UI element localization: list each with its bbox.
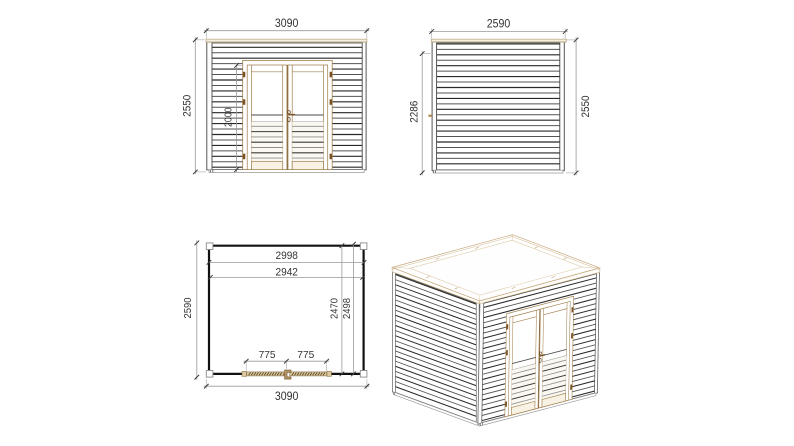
svg-text:3090: 3090 — [275, 390, 299, 403]
svg-text:2590: 2590 — [487, 16, 511, 30]
svg-text:775: 775 — [259, 350, 276, 361]
svg-text:2498: 2498 — [342, 298, 353, 319]
svg-text:2590: 2590 — [183, 297, 194, 318]
svg-text:2550: 2550 — [182, 95, 194, 117]
svg-text:2998: 2998 — [276, 250, 298, 262]
svg-text:2942: 2942 — [276, 267, 298, 279]
svg-text:2286: 2286 — [408, 101, 420, 123]
svg-text:2470: 2470 — [329, 298, 340, 319]
svg-text:775: 775 — [297, 350, 314, 361]
svg-text:3090: 3090 — [275, 16, 299, 30]
svg-text:2550: 2550 — [580, 95, 592, 117]
svg-text:2000: 2000 — [223, 107, 234, 127]
